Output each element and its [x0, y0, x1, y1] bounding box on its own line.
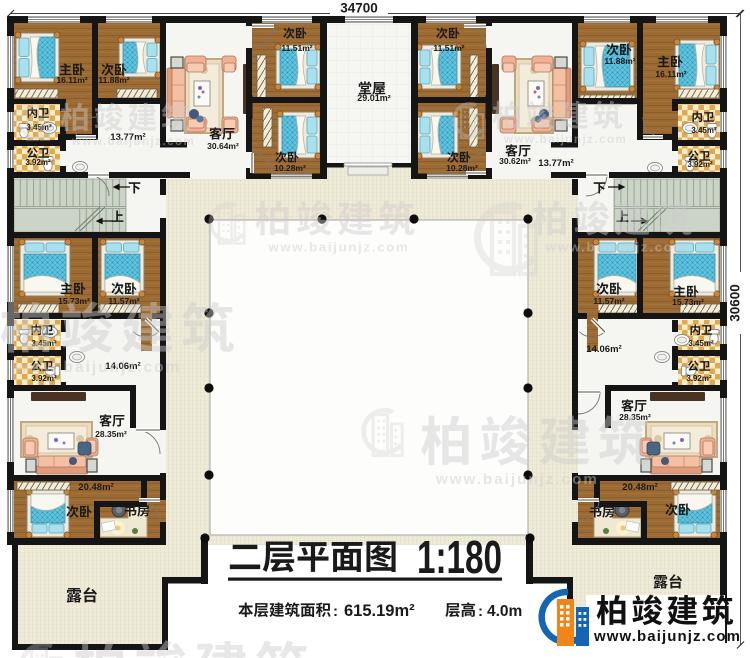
svg-text:29.01m²: 29.01m²: [357, 93, 391, 103]
svg-text::: :: [478, 603, 483, 620]
svg-text:www.baijunjz.com: www.baijunjz.com: [435, 471, 599, 488]
svg-text:1:180: 1:180: [417, 531, 502, 583]
svg-text:15.73m²: 15.73m²: [672, 297, 704, 307]
svg-text:11.51m²: 11.51m²: [433, 43, 464, 53]
svg-text:3.45m²: 3.45m²: [688, 339, 714, 348]
svg-text:16.11m²: 16.11m²: [56, 75, 87, 85]
svg-text:3.92m²: 3.92m²: [25, 158, 51, 167]
svg-text:30.62m²: 30.62m²: [499, 156, 531, 166]
svg-text:14.06m²: 14.06m²: [586, 344, 621, 355]
svg-text:11.88m²: 11.88m²: [98, 75, 129, 85]
svg-text:10.28m²: 10.28m²: [446, 163, 478, 173]
svg-text:3.92m²: 3.92m²: [687, 160, 713, 169]
svg-text:28.35m²: 28.35m²: [95, 429, 127, 439]
svg-text::: :: [333, 603, 338, 620]
svg-text:3.92m²: 3.92m²: [686, 374, 712, 383]
svg-text:34700: 34700: [340, 1, 378, 16]
svg-text:11.51m²: 11.51m²: [281, 43, 312, 53]
svg-text:www.baijunjz.com: www.baijunjz.com: [503, 134, 627, 146]
svg-text:20.48m²: 20.48m²: [622, 482, 657, 493]
svg-text:10.28m²: 10.28m²: [274, 163, 306, 173]
svg-text:16.11m²: 16.11m²: [655, 69, 686, 79]
svg-text:13.77m²: 13.77m²: [538, 158, 573, 169]
svg-text:www.baijunjz.com: www.baijunjz.com: [71, 136, 195, 148]
svg-text:28.35m²: 28.35m²: [619, 412, 651, 422]
svg-text:4.0m: 4.0m: [487, 603, 522, 620]
svg-text:11.88m²: 11.88m²: [604, 56, 635, 66]
svg-text:www.baijunjz.com: www.baijunjz.com: [593, 628, 741, 645]
svg-text:www.baijunjz.com: www.baijunjz.com: [545, 239, 687, 254]
svg-text:15.73m²: 15.73m²: [58, 296, 90, 306]
svg-text:30600: 30600: [728, 284, 743, 322]
svg-text:www.baijunjz.com: www.baijunjz.com: [267, 239, 409, 254]
svg-text:11.57m²: 11.57m²: [593, 296, 624, 306]
svg-text:3.45m²: 3.45m²: [691, 126, 717, 135]
svg-text:20.48m²: 20.48m²: [78, 482, 113, 493]
svg-text:615.19m²: 615.19m²: [344, 602, 415, 620]
svg-text:www.baijunjz.com: www.baijunjz.com: [15, 359, 182, 376]
svg-text:30.64m²: 30.64m²: [207, 141, 239, 151]
